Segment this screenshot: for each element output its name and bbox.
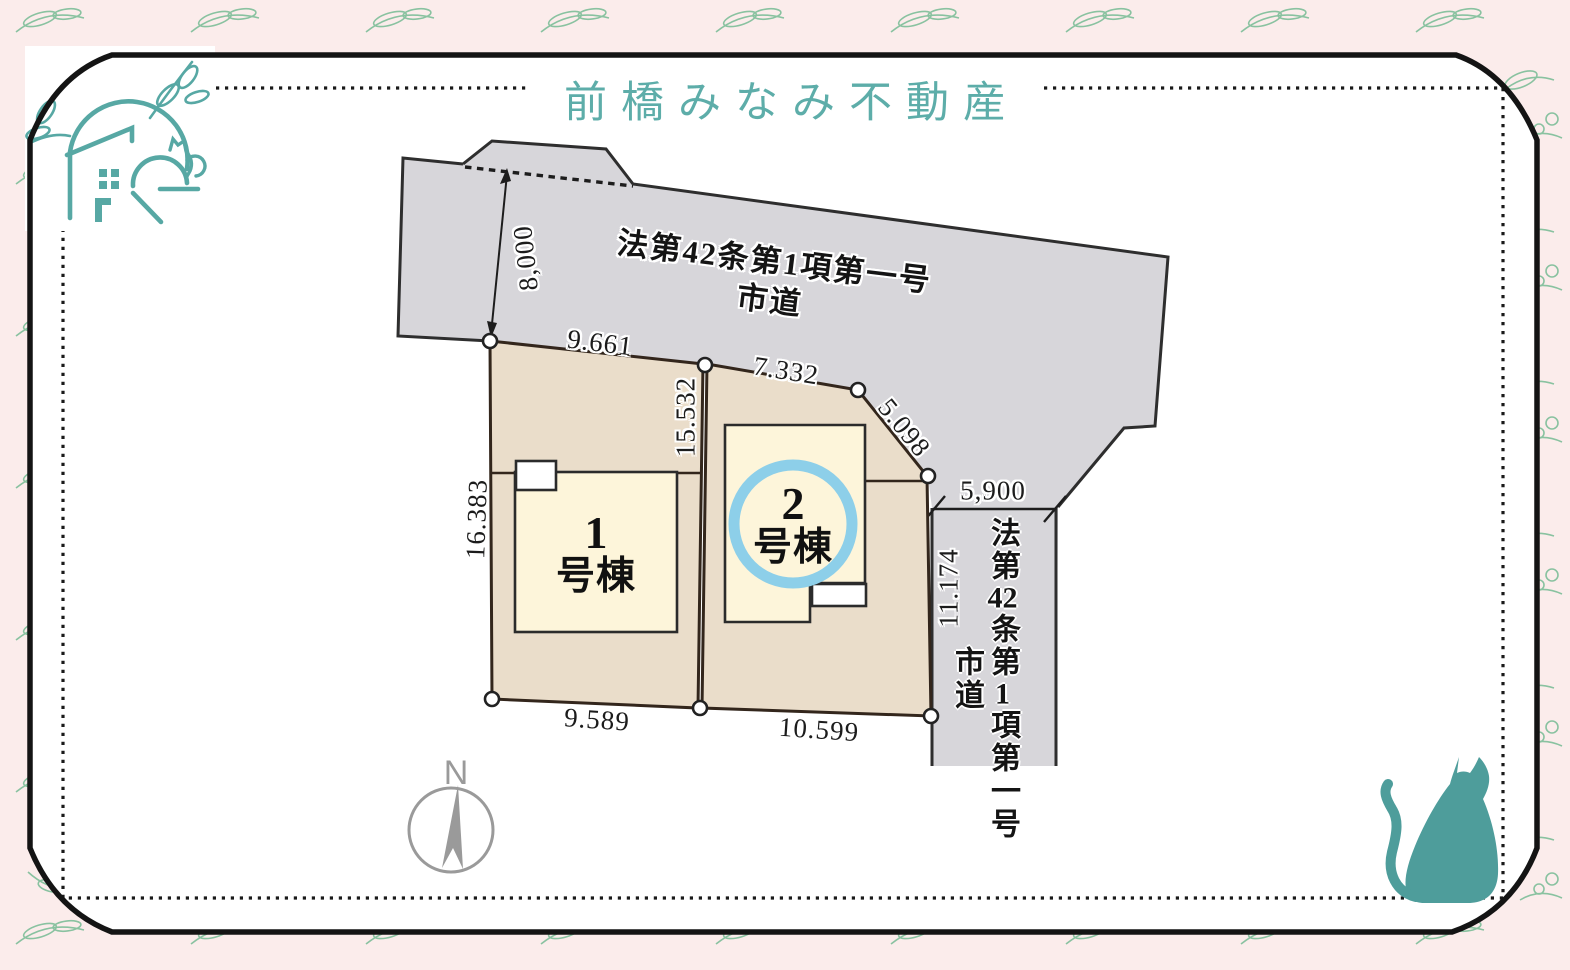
dim-plot2-right: 11.174 bbox=[934, 548, 965, 627]
building-1-label: 1 号棟 bbox=[515, 474, 677, 632]
dim-plot2-bottom: 10.599 bbox=[778, 712, 860, 749]
compass-north-label: N bbox=[444, 754, 469, 792]
flyer-canvas: N bbox=[0, 0, 1570, 970]
dim-plot2-left: 15.532 bbox=[671, 377, 702, 457]
right-road-type-text: 市道 bbox=[950, 646, 983, 712]
logo bbox=[25, 46, 215, 231]
dim-right-road-width: 5,900 bbox=[960, 476, 1026, 507]
building-2-label: 2 号棟 bbox=[731, 444, 855, 604]
company-title: 前橋みなみ不動産 bbox=[530, 66, 1040, 132]
dim-plot1-bottom: 9.589 bbox=[563, 702, 631, 738]
dim-plot1-left: 16.383 bbox=[460, 478, 494, 559]
right-road-law-text: 法第42条第1項第一号 bbox=[986, 517, 1019, 841]
